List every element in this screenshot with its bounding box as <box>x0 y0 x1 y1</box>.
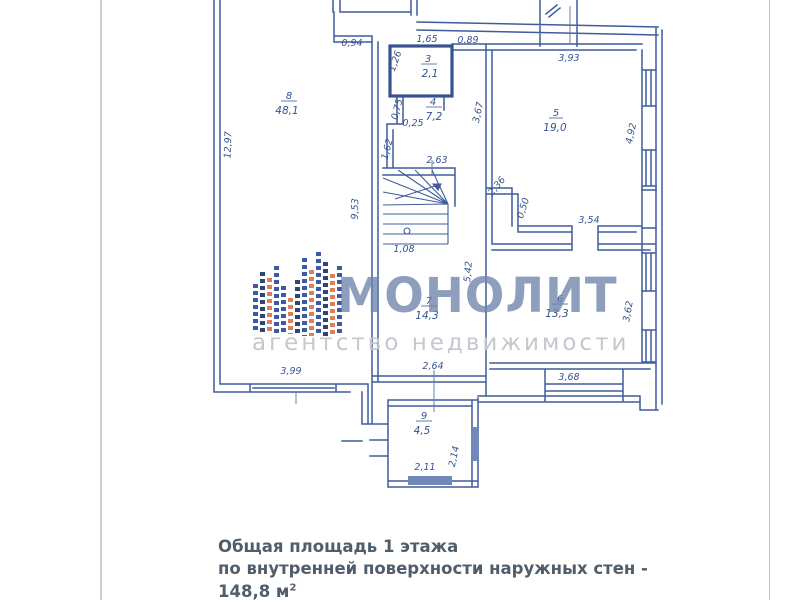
monolit-logo <box>253 244 345 336</box>
watermark-subtitle: агентство недвижимости <box>252 330 629 356</box>
dim-label: 3,62 <box>621 300 636 323</box>
room-area: 48,1 <box>275 105 298 117</box>
filled-wall-block <box>408 476 452 485</box>
room-area: 7,2 <box>426 111 443 123</box>
room-number: 8 <box>286 91 292 102</box>
dim-label: 3,67 <box>471 101 486 124</box>
dim-label: 3,68 <box>558 372 579 383</box>
dim-label: 0,25 <box>402 118 423 129</box>
stair-newel-post <box>404 228 410 234</box>
dim-label: 3,99 <box>280 366 301 377</box>
dim-label: 3,93 <box>558 53 579 64</box>
room-number: 4 <box>430 97 436 108</box>
dim-label: 12,97 <box>223 131 235 159</box>
room-area: 19,0 <box>543 122 567 134</box>
staircase <box>383 170 448 244</box>
dim-label: 1,08 <box>393 244 414 255</box>
dim-label: 4,92 <box>624 122 639 145</box>
plan-caption: Общая площадь 1 этажа по внутренней пове… <box>218 536 698 603</box>
room-number: 3 <box>425 54 431 65</box>
caption-line-1: Общая площадь 1 этажа <box>218 536 698 558</box>
dim-label: 3,54 <box>578 215 599 226</box>
dim-label: 0,89 <box>457 35 478 46</box>
caption-line-2: по внутренней поверхности наружных стен … <box>218 558 698 603</box>
caption-superscript: 2 <box>289 582 296 593</box>
dim-label: 1,65 <box>416 34 437 45</box>
dim-label: 2,64 <box>422 361 443 372</box>
room-area: 2,1 <box>422 68 439 80</box>
room-area: 4,5 <box>414 425 431 437</box>
window-hatches <box>642 70 656 362</box>
watermark-title: МОНОЛИТ <box>337 268 618 324</box>
dim-label: 2,14 <box>447 445 462 468</box>
room-number: 5 <box>553 108 559 119</box>
dim-label: 0,94 <box>341 38 362 49</box>
dim-label: 9,53 <box>350 198 362 220</box>
filled-wall-block <box>471 427 479 461</box>
room-number: 9 <box>421 411 427 422</box>
dim-label: 2,63 <box>426 155 447 166</box>
dim-label: 2,11 <box>414 462 435 473</box>
